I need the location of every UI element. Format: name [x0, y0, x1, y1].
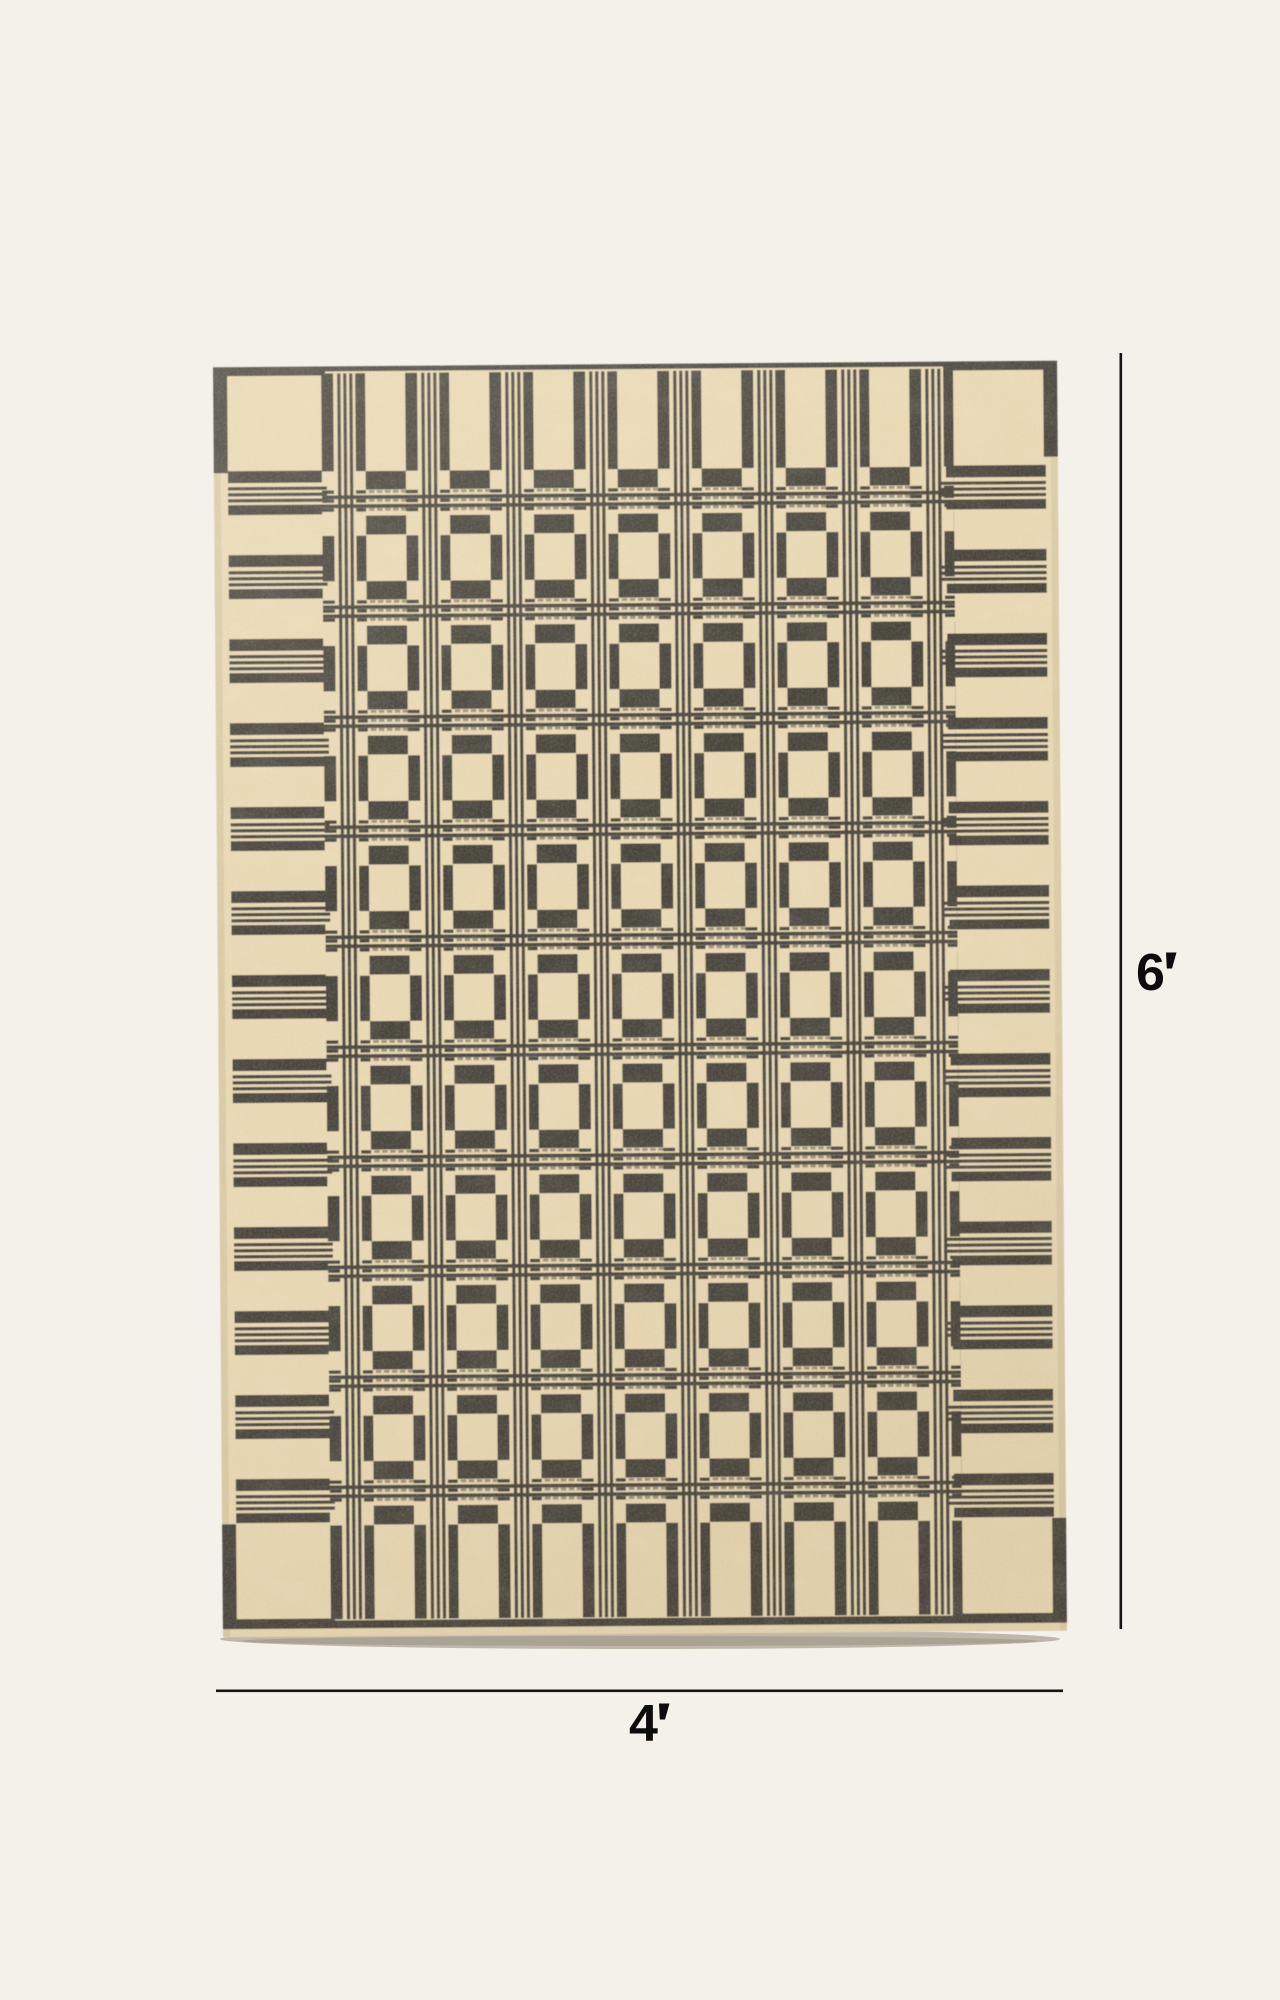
svg-text:6: 6 — [1136, 944, 1165, 1002]
svg-text:4: 4 — [629, 1695, 658, 1753]
